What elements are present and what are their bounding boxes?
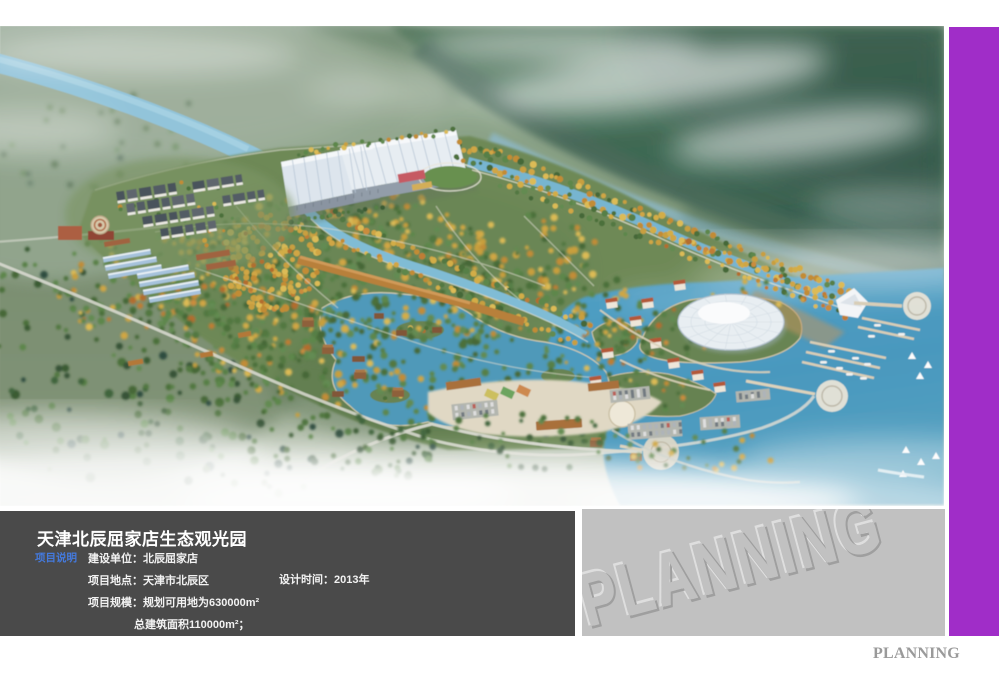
- svg-text:PLANNING: PLANNING: [582, 509, 891, 636]
